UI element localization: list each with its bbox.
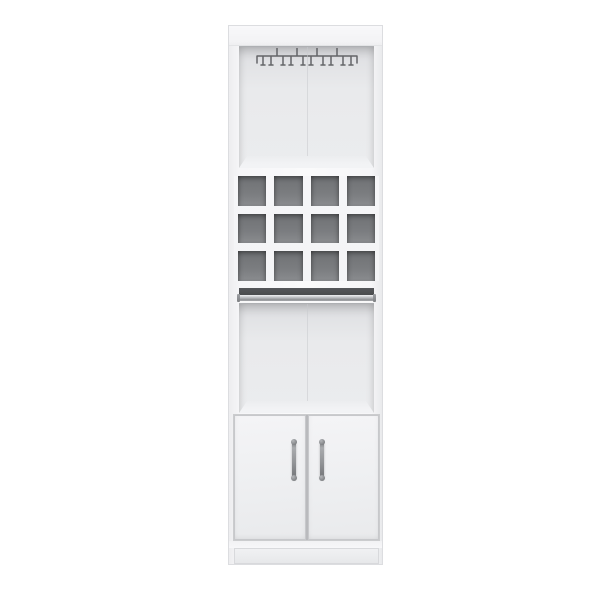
wine-cubby	[274, 176, 302, 206]
wine-cubby	[238, 251, 266, 281]
wine-cubby-rack	[234, 176, 379, 281]
wine-cubby	[347, 251, 375, 281]
door-handle-right[interactable]	[320, 441, 324, 479]
wine-cubby	[274, 214, 302, 244]
recess-strip	[239, 288, 374, 295]
wine-cubby	[274, 251, 302, 281]
compartment-floor	[239, 156, 374, 168]
back-panel-seam	[307, 304, 308, 403]
cabinet-door-left[interactable]	[234, 415, 306, 540]
back-panel-seam	[307, 47, 308, 158]
wine-cubby	[311, 176, 339, 206]
wine-cubby	[347, 214, 375, 244]
bar-cabinet	[228, 25, 383, 565]
wine-cubby	[238, 214, 266, 244]
wine-cubby	[347, 176, 375, 206]
serving-rail	[237, 295, 376, 301]
cabinet-top-panel	[229, 26, 382, 46]
bottom-frame-band	[229, 541, 382, 548]
wine-cubby	[311, 251, 339, 281]
door-section	[233, 414, 380, 541]
compartment-floor	[239, 401, 374, 413]
product-image	[0, 0, 600, 600]
wine-cubby	[311, 214, 339, 244]
open-shelf-compartment	[239, 303, 374, 413]
wine-cubby	[238, 176, 266, 206]
door-handle-left[interactable]	[292, 441, 296, 479]
plinth-base	[234, 548, 379, 564]
top-compartment	[239, 46, 374, 168]
cabinet-door-right[interactable]	[308, 415, 380, 540]
